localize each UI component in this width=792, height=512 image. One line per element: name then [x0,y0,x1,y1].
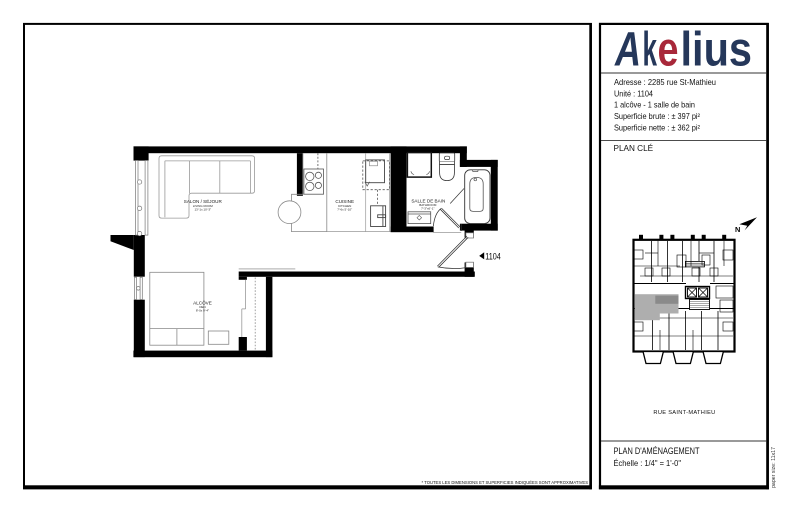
svg-text:Superficie nette : ± 362 pi²: Superficie nette : ± 362 pi² [614,123,700,132]
svg-text:* TOUTES LES DIMENSIONS ET SUP: * TOUTES LES DIMENSIONS ET SUPERFICIES I… [422,479,589,485]
svg-text:1 alcôve - 1 salle de bain: 1 alcôve - 1 salle de bain [614,100,695,109]
svg-text:k: k [643,24,658,77]
svg-text:paper size: 11x17: paper size: 11x17 [771,447,777,488]
svg-text:Échelle : 1/4" = 1'-0": Échelle : 1/4" = 1'-0" [614,458,682,468]
svg-text:Unité : 1104: Unité : 1104 [614,89,653,98]
svg-text:N: N [735,225,740,234]
svg-text:13'-1x 10'-3": 13'-1x 10'-3" [195,207,212,211]
svg-text:lius: lius [681,24,753,77]
svg-text:RUE SAINT-MATHIEU: RUE SAINT-MATHIEU [653,410,715,416]
svg-text:PLAN CLÉ: PLAN CLÉ [614,143,654,153]
svg-text:1104: 1104 [485,251,501,261]
svg-text:Superficie brute : ± 397 pi²: Superficie brute : ± 397 pi² [614,112,700,121]
svg-text:7'-3"x6'-1": 7'-3"x6'-1" [421,207,434,211]
svg-text:Adresse : 2285 rue St-Mathieu: Adresse : 2285 rue St-Mathieu [614,78,716,87]
svg-text:7'-6x 5'-10": 7'-6x 5'-10" [337,207,352,211]
svg-text:e: e [658,24,679,77]
svg-text:PLAN D'AMÉNAGEMENT: PLAN D'AMÉNAGEMENT [614,446,700,456]
svg-text:8'-0x 9'-4": 8'-0x 9'-4" [196,309,209,313]
svg-text:A: A [614,24,641,77]
